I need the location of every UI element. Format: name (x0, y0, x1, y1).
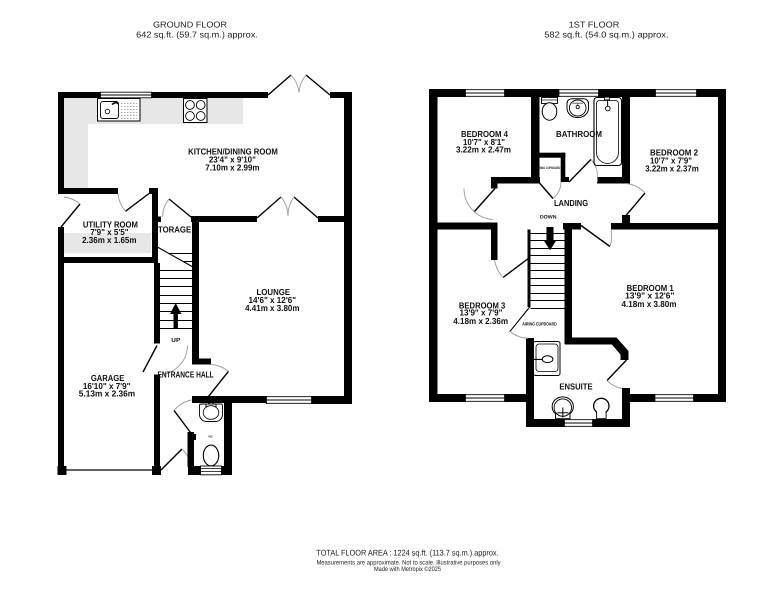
svg-text:582 sq.ft. (54.0 sq.m.) approx: 582 sq.ft. (54.0 sq.m.) approx. (544, 30, 668, 40)
svg-text:UP: UP (171, 337, 180, 344)
svg-text:3.22m x 2.47m: 3.22m x 2.47m (456, 145, 511, 155)
svg-text:LANDING: LANDING (554, 198, 588, 208)
svg-text:ENSUITE: ENSUITE (559, 381, 592, 391)
svg-text:ENTRANCE HALL: ENTRANCE HALL (158, 370, 215, 380)
svg-text:4.18m x 2.36m: 4.18m x 2.36m (453, 316, 508, 326)
svg-text:Made with Metropix ©2025: Made with Metropix ©2025 (374, 566, 441, 573)
svg-text:AIRING CUPBOARD: AIRING CUPBOARD (536, 166, 560, 170)
svg-text:7.10m x 2.99m: 7.10m x 2.99m (205, 163, 259, 173)
svg-text:GROUND FLOOR: GROUND FLOOR (153, 20, 227, 30)
svg-text:2.36m x 1.65m: 2.36m x 1.65m (82, 235, 137, 245)
svg-text:3.22m x 2.37m: 3.22m x 2.37m (645, 163, 699, 173)
svg-text:1ST FLOOR: 1ST FLOOR (569, 20, 620, 30)
svg-text:WC: WC (208, 434, 213, 438)
svg-text:642 sq.ft. (59.7 sq.m.) approx: 642 sq.ft. (59.7 sq.m.) approx. (136, 30, 258, 40)
svg-text:5.13m x 2.36m: 5.13m x 2.36m (79, 389, 136, 399)
svg-text:STORAGE: STORAGE (153, 224, 192, 234)
svg-text:BATHROOM: BATHROOM (556, 129, 602, 139)
svg-text:DOWN: DOWN (540, 215, 557, 221)
svg-text:4.41m x 3.80m: 4.41m x 3.80m (245, 303, 300, 313)
svg-text:4.18m x 3.80m: 4.18m x 3.80m (621, 299, 676, 309)
svg-text:TOTAL FLOOR AREA : 1224 sq.ft.: TOTAL FLOOR AREA : 1224 sq.ft. (113.7 sq… (316, 548, 498, 557)
svg-text:AIRING CUPBOARD: AIRING CUPBOARD (522, 321, 557, 326)
